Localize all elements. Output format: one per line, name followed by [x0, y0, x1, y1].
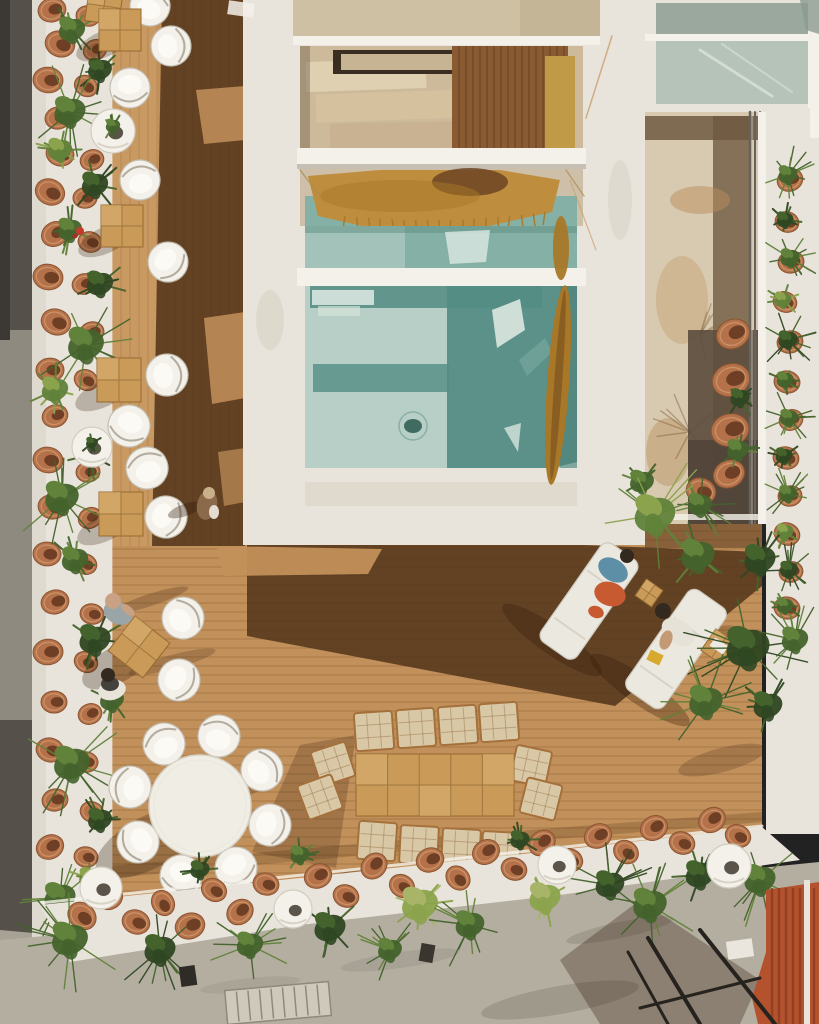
bottom-planter-ledge-lamp-10 [80, 867, 122, 909]
bottom-planter-ledge-lamp-13 [707, 844, 751, 888]
pool-structure-rect-18 [297, 164, 586, 169]
rooftop-terrace-aerial-photo [0, 0, 819, 1024]
right-roof-section-rect-1 [656, 3, 808, 35]
pool-structure-ell-52 [553, 216, 569, 280]
sun-loungers-circle-13 [655, 603, 671, 619]
left-bistro-furniture-wtable-16 [99, 492, 143, 536]
pool-structure-rect-29 [305, 226, 577, 233]
left-bistro-furniture-circle-28 [101, 668, 115, 682]
pool-structure [243, 0, 645, 545]
left-bistro-furniture-circle-24 [105, 593, 121, 609]
left-bistro-furniture-wtable-12 [97, 358, 141, 402]
dining-set-wchair-5 [354, 711, 395, 752]
dining-set-wtable-17 [356, 754, 514, 816]
photo-viewport [0, 0, 819, 1024]
pool-structure-rect-31 [297, 268, 586, 286]
pool-structure-rect-17 [297, 148, 586, 164]
round-dining-set-circle-10 [149, 755, 251, 857]
dining-set-wchair-8 [479, 702, 520, 743]
left-bistro-furniture-circle-32 [203, 487, 215, 499]
bottom-planter-ledge-lamp-11 [274, 890, 312, 928]
pool-structure-ell-1 [256, 290, 284, 350]
left-planter-ledge-circle-4 [76, 227, 84, 235]
pool-structure-ell-2 [608, 160, 632, 240]
street-left-rect-2 [0, 0, 10, 340]
pool-structure-rect-41 [312, 290, 374, 305]
dining-set-wchair-7 [438, 705, 479, 746]
right-planter-ledge [765, 108, 819, 834]
deck-poly-4 [196, 86, 245, 144]
pool-structure-rect-46 [577, 286, 586, 476]
pool-structure-poly-30 [445, 230, 490, 264]
bottom-planter-ledge-rect-19 [804, 880, 810, 1024]
right-roof-section-rect-5 [645, 34, 819, 41]
pool-structure-rect-16 [300, 46, 310, 148]
pool-structure-ell-23 [320, 180, 480, 212]
bottom-planter-ledge-rect-14 [179, 965, 198, 987]
pool-structure-ell-44 [404, 419, 422, 433]
pool-structure-rect-15 [545, 56, 575, 148]
left-bistro-furniture-ell-31 [209, 505, 219, 519]
right-planter-ledge-rect-1 [810, 108, 819, 138]
left-planter-ledge-circle-5 [73, 234, 78, 239]
deck-poly-9 [216, 546, 382, 576]
left-bistro-furniture-wtable-4 [99, 9, 141, 51]
dining-set-wchair-6 [396, 708, 437, 749]
pool-structure-rect-45 [297, 286, 305, 476]
right-roof-section-rect-23 [758, 112, 766, 524]
pool-structure-rect-36 [313, 364, 449, 392]
sun-loungers-circle-10 [620, 549, 634, 563]
street-left-rect-1 [0, 330, 32, 720]
pool-structure-rect-42 [318, 306, 360, 316]
dining-set-wchair-16 [519, 777, 563, 821]
pool-structure-rect-49 [305, 482, 577, 506]
left-bistro-furniture-wtable-8 [101, 205, 143, 247]
bottom-planter-ledge-rect-20 [726, 938, 754, 959]
bottom-planter-ledge-lamp-12 [538, 846, 576, 884]
pool-structure-rect-10 [316, 89, 467, 122]
pool-structure-rect-6 [520, 0, 600, 36]
right-roof-section-ell-13 [670, 186, 730, 214]
pool-structure-rect-7 [293, 36, 600, 45]
terracotta-pot-30 [41, 691, 67, 713]
